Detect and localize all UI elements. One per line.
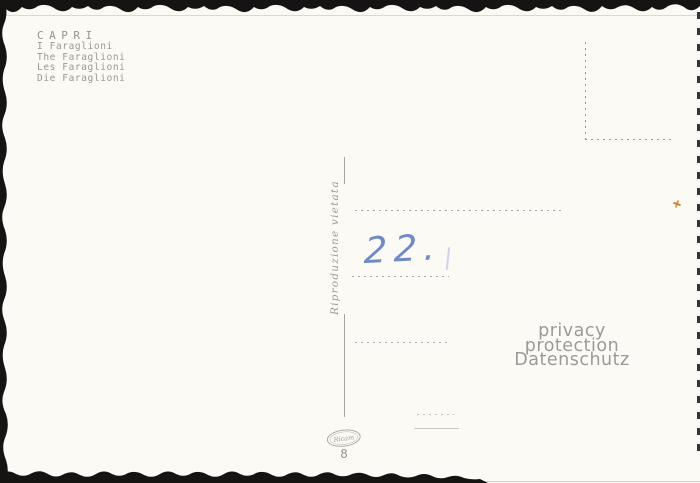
scan-shadow-line (4, 15, 697, 16)
card-number: 8 (335, 446, 353, 461)
footer-solid-mark (414, 428, 459, 429)
address-line-1 (355, 210, 565, 211)
torn-edge-bottom-faint (468, 481, 700, 482)
divider-line-bottom (344, 314, 345, 417)
privacy-watermark: privacy protection Datenschutz (492, 324, 652, 368)
footer-dotted-mark (417, 414, 454, 415)
torn-edge-left (0, 0, 10, 483)
watermark-line-2: Datenschutz (492, 353, 652, 368)
address-line-2 (352, 276, 449, 277)
caption-block: CAPRI I Faraglioni The Faraglioni Les Fa… (37, 29, 125, 84)
address-line-3 (355, 342, 448, 343)
watermark-line-1: privacy protection (492, 324, 652, 353)
caption-line-french: Les Faraglioni (37, 63, 125, 74)
caption-line-german: Die Faraglioni (37, 74, 125, 85)
stamp-box-left-dash (585, 42, 586, 140)
stamp-box (585, 42, 673, 140)
divider-imprint-text: Riproduzione vietata (329, 184, 346, 315)
handwriting-stray-stroke (446, 247, 450, 270)
caption-line-italian: I Faraglioni (37, 42, 125, 53)
handwritten-number: 22. (363, 227, 443, 272)
ink-speck-icon (672, 199, 682, 209)
divider-line-top (344, 157, 345, 184)
stamp-box-bottom-dash (585, 139, 673, 140)
publisher-logo-text: Ricam (332, 433, 354, 444)
